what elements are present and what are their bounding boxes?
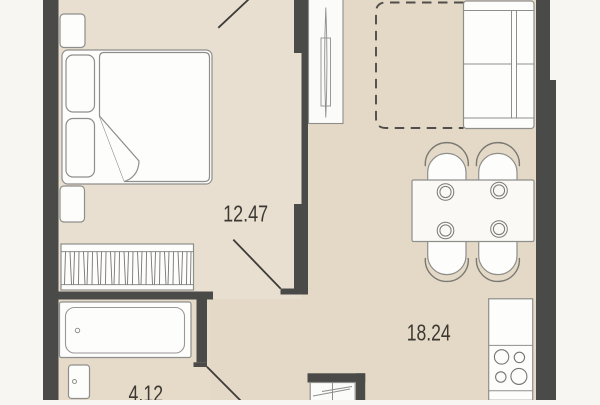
- svg-text:18.24: 18.24: [407, 320, 451, 346]
- svg-text:12.47: 12.47: [223, 200, 268, 226]
- svg-text:4.12: 4.12: [129, 381, 164, 401]
